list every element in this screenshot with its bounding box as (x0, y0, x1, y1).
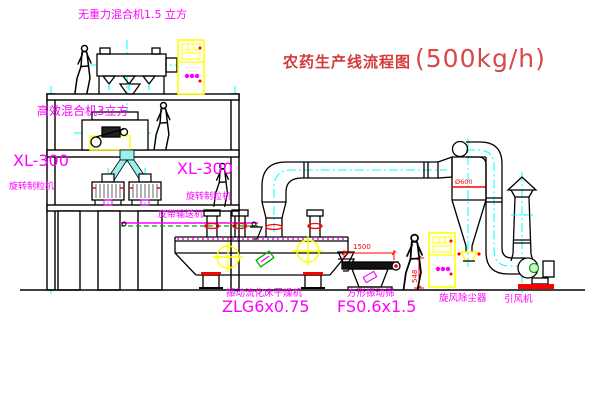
sieve-model-label: FS0.6x1.5 (337, 299, 416, 315)
sieve-height-dimension: 548 (412, 270, 419, 283)
granulator-left-name-label: 旋转制粒机 (9, 183, 54, 192)
gravity-mixer-label: 无重力混合机1.5 立方 (78, 9, 187, 20)
control-cabinet-1 (178, 40, 204, 94)
fan-label: 引风机 (504, 295, 533, 305)
dryer-model-label: ZLG6x0.75 (222, 299, 310, 315)
granulator-right (129, 174, 161, 205)
gravity-mixer (97, 48, 177, 94)
title-capacity: (500kg/h) (415, 44, 546, 73)
worker-figure-1 (75, 46, 91, 94)
granulator-left-model-label: XL-300 (13, 153, 69, 169)
title-text: 农药生产线流程图 (283, 51, 411, 72)
control-cabinet-2 (429, 233, 455, 287)
flow-diagram-page: 无重力混合机1.5 立方 农药生产线流程图 (500kg/h) 高效混合机3立方… (0, 0, 600, 403)
worker-figure-2 (154, 102, 170, 149)
granulator-left (92, 174, 124, 205)
cyclone-label: 旋风除尘器 (439, 294, 487, 304)
high-efficiency-mixer-label: 高效混合机3立方 (37, 105, 129, 117)
sieve-length-dimension: 1500 (353, 244, 371, 251)
induced-draft-fan (518, 258, 554, 289)
page-title: 农药生产线流程图 (500kg/h) (283, 44, 546, 73)
granulator-right-model-label: XL-300 (177, 161, 233, 177)
cyclone-diameter-dimension: Ø600 (455, 179, 473, 186)
exhaust-duct (262, 162, 438, 202)
belt-conveyor-label: 皮带输送机 (158, 211, 203, 220)
granulator-right-name-label: 旋转制粒机 (186, 193, 231, 202)
